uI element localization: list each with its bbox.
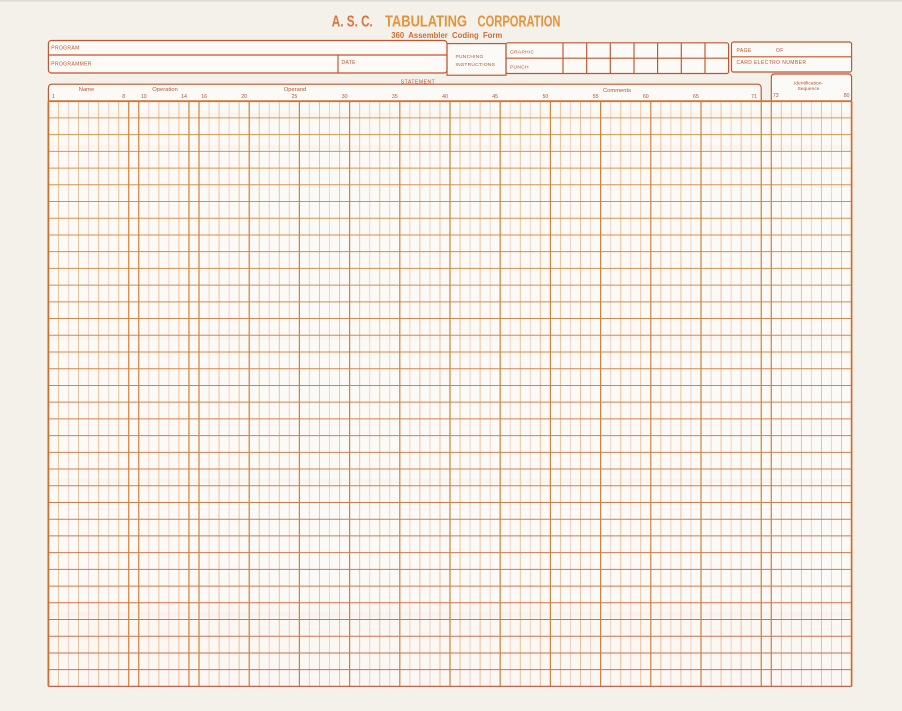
svg-text:71: 71 <box>751 94 757 100</box>
svg-text:PUNCH: PUNCH <box>510 64 529 70</box>
svg-text:45: 45 <box>492 94 498 100</box>
svg-text:CARD ELECTRO NUMBER: CARD ELECTRO NUMBER <box>737 60 807 66</box>
svg-text:1: 1 <box>52 94 55 100</box>
svg-text:PROGRAM: PROGRAM <box>51 45 79 51</box>
svg-text:Operation: Operation <box>152 87 177 93</box>
svg-text:Sequence: Sequence <box>797 86 819 92</box>
svg-text:35: 35 <box>392 94 398 100</box>
svg-text:55: 55 <box>593 94 599 100</box>
svg-text:65: 65 <box>693 94 699 100</box>
svg-text:CORPORATION: CORPORATION <box>478 14 561 31</box>
svg-text:PAGE: PAGE <box>737 48 752 54</box>
svg-text:20: 20 <box>241 94 247 100</box>
svg-text:INSTRUCTIONS: INSTRUCTIONS <box>456 62 496 68</box>
svg-text:Identification-: Identification- <box>794 80 823 86</box>
svg-text:DATE: DATE <box>342 60 357 66</box>
svg-text:OF: OF <box>776 48 784 54</box>
svg-text:Operand: Operand <box>284 87 307 93</box>
svg-text:PUNCHING: PUNCHING <box>456 54 484 60</box>
svg-text:25: 25 <box>292 94 298 100</box>
svg-text:30: 30 <box>342 94 348 100</box>
svg-text:16: 16 <box>201 94 207 100</box>
svg-text:50: 50 <box>543 94 549 100</box>
svg-text:8: 8 <box>122 94 125 100</box>
svg-text:TABULATING: TABULATING <box>385 14 467 31</box>
svg-text:PROGRAMMER: PROGRAMMER <box>51 62 91 68</box>
svg-text:80: 80 <box>844 93 850 99</box>
svg-text:Name: Name <box>79 87 94 93</box>
svg-text:Comments: Comments <box>603 88 631 94</box>
svg-text:GRAPHIC: GRAPHIC <box>510 50 535 56</box>
svg-text:A. S. C.: A. S. C. <box>332 14 373 31</box>
svg-text:10: 10 <box>141 94 147 100</box>
svg-text:73: 73 <box>773 93 779 99</box>
svg-text:14: 14 <box>181 94 187 100</box>
svg-text:360 Assembler Coding Form: 360 Assembler Coding Form <box>391 30 502 40</box>
svg-text:60: 60 <box>643 94 649 100</box>
svg-text:40: 40 <box>442 94 448 100</box>
